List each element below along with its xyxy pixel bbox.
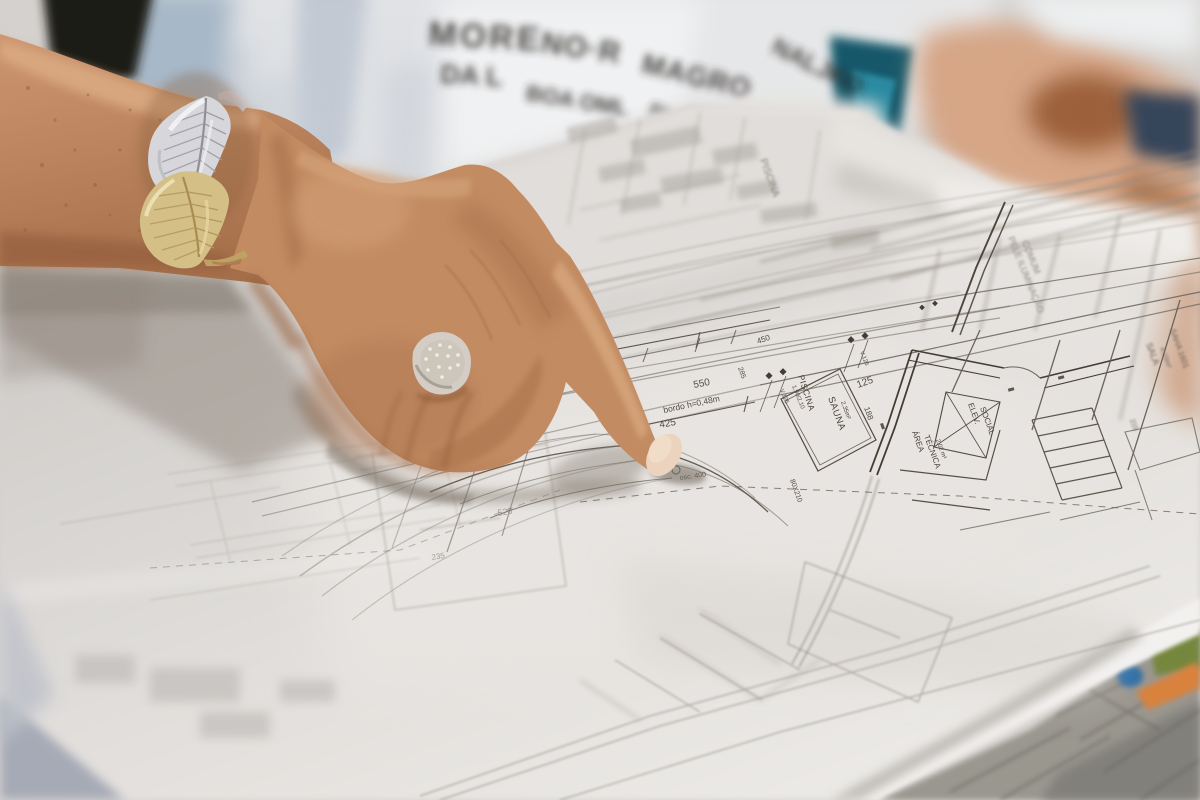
svg-text:DA L: DA L	[440, 59, 503, 92]
svg-text:MORE: MORE	[428, 15, 544, 59]
